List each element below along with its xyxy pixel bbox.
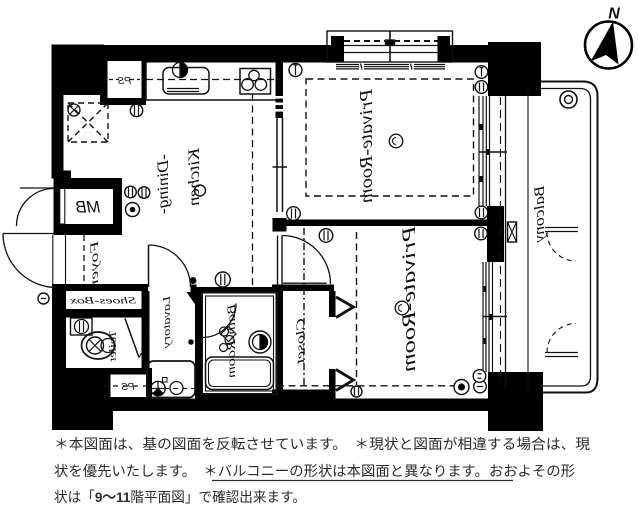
svg-text:Bath-Room: Bath-Room [224,304,238,378]
svg-text:-Dining-: -Dining- [155,154,172,214]
svg-text:PS: PS [118,76,132,87]
svg-text:Toilet: Toilet [108,331,119,363]
svg-text:状は「9～11階平面図」で確認出来ます。: 状は「9～11階平面図」で確認出来ます。 [54,489,306,505]
svg-text:Private-Room: Private-Room [399,225,420,372]
svg-text:PS: PS [121,382,135,393]
svg-text:Private-Room: Private-Room [356,88,376,203]
svg-text:状を優先いたします。 ＊バルコニーの形状は本図面と異なります: 状を優先いたします。 ＊バルコニーの形状は本図面と異なります。おおよその形 [54,463,575,479]
svg-text:N: N [608,6,620,23]
svg-text:Lavatory: Lavatory [161,295,173,348]
svg-text:Shoes-Box: Shoes-Box [69,297,136,307]
svg-text:Kitchen: Kitchen [186,147,203,206]
svg-text:Foyer: Foyer [87,239,101,287]
svg-text:＊本図面は、基の図面を反転させています。 ＊現状と図面が相違: ＊本図面は、基の図面を反転させています。 ＊現状と図面が相違する場合は、現 [54,436,590,452]
svg-text:MB: MB [76,199,101,217]
svg-text:Balcony: Balcony [532,186,548,243]
svg-text:Closet: Closet [295,318,307,365]
